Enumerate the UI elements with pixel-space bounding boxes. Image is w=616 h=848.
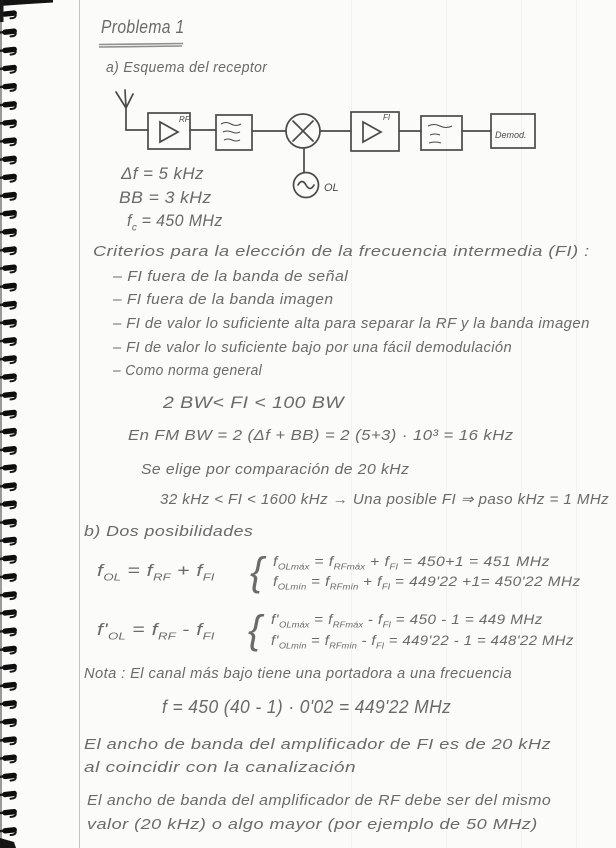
svg-text:RF: RF: [179, 115, 191, 124]
svg-text:Demod.: Demod.: [495, 130, 527, 140]
svg-text:FI: FI: [383, 113, 391, 122]
svg-text:OL: OL: [324, 182, 339, 194]
